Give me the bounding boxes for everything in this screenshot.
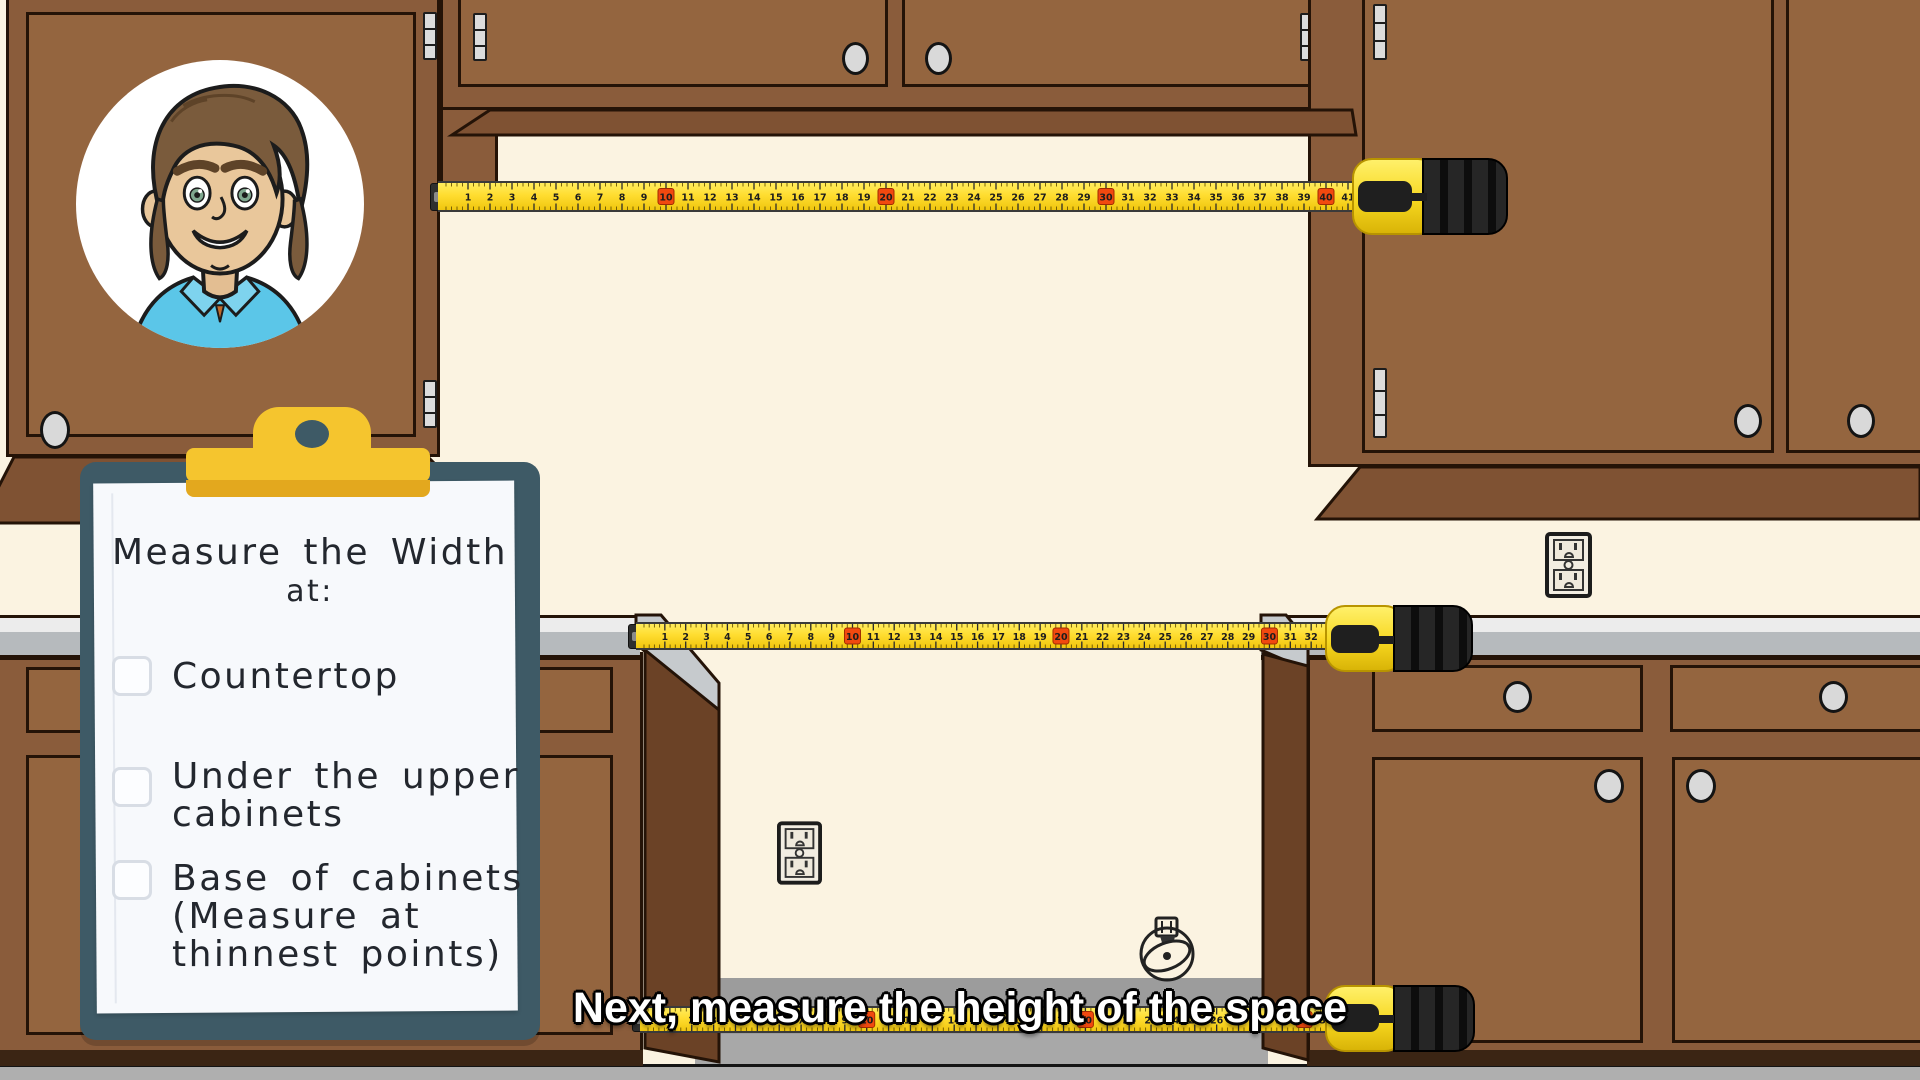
svg-text:35: 35 [1209, 193, 1222, 204]
svg-text:30: 30 [1099, 193, 1113, 204]
svg-text:16: 16 [791, 193, 805, 204]
svg-text:27: 27 [1200, 632, 1213, 643]
svg-text:40: 40 [1319, 193, 1333, 204]
svg-text:5: 5 [553, 193, 560, 204]
base-right-door-knob-1 [1594, 769, 1624, 803]
clipboard-clip-hole [295, 420, 329, 448]
svg-text:21: 21 [901, 193, 914, 204]
upper-cabinet-middle-door-left [458, 0, 888, 87]
tape-body-countertop-back [1393, 605, 1473, 672]
svg-text:12: 12 [888, 632, 901, 643]
svg-text:15: 15 [769, 193, 782, 204]
kitchen-floor [0, 1064, 1920, 1080]
svg-text:13: 13 [908, 632, 921, 643]
svg-text:23: 23 [1117, 632, 1130, 643]
svg-text:26: 26 [1179, 632, 1193, 643]
svg-text:1: 1 [465, 193, 472, 204]
svg-text:38: 38 [1275, 193, 1289, 204]
wall-outlet-lower [777, 818, 822, 888]
svg-text:27: 27 [1033, 193, 1046, 204]
svg-text:11: 11 [681, 193, 694, 204]
svg-text:26: 26 [1011, 193, 1025, 204]
hinge-icon [1373, 4, 1387, 60]
svg-text:22: 22 [923, 193, 936, 204]
svg-text:9: 9 [641, 193, 648, 204]
svg-text:17: 17 [813, 193, 826, 204]
svg-text:20: 20 [1054, 632, 1068, 643]
base-right-drawer-knob-2 [1819, 681, 1848, 713]
svg-text:3: 3 [703, 632, 710, 643]
clipboard-clip-bar [186, 448, 430, 482]
svg-text:7: 7 [787, 632, 794, 643]
tape-body-upper-lock [1358, 181, 1412, 212]
svg-text:14: 14 [929, 632, 943, 643]
svg-text:12: 12 [703, 193, 716, 204]
upper-cabinet-right-door-right [1786, 0, 1920, 453]
svg-text:4: 4 [724, 632, 731, 643]
svg-text:2: 2 [682, 632, 689, 643]
checkbox-base-of-cabinets[interactable] [112, 860, 152, 900]
svg-text:30: 30 [1263, 632, 1277, 643]
svg-text:17: 17 [992, 632, 1005, 643]
svg-text:3: 3 [509, 193, 516, 204]
checklist-heading-line2: at: [80, 574, 540, 609]
tape-body-countertop-lock [1331, 625, 1379, 653]
avatar-eye [232, 177, 258, 209]
checklist-heading-line1: Measure the Width [80, 532, 540, 573]
hinge-icon [1373, 368, 1387, 438]
svg-text:10: 10 [846, 632, 860, 643]
svg-text:41: 41 [1341, 193, 1352, 204]
upper-cabinet-left-knob [40, 411, 70, 449]
svg-text:25: 25 [989, 193, 1002, 204]
presenter-avatar [76, 60, 364, 348]
svg-text:2: 2 [487, 193, 494, 204]
svg-text:37: 37 [1253, 193, 1266, 204]
tape-measure-countertop: 1234567891011121314151617181920212223242… [636, 622, 1336, 650]
svg-text:36: 36 [1231, 193, 1245, 204]
svg-text:9: 9 [828, 632, 835, 643]
checklist-item-under-upper-cabinets: Under the upper cabinets [172, 758, 532, 834]
base-right-drawer-knob-1 [1503, 681, 1532, 713]
svg-text:31: 31 [1121, 193, 1134, 204]
svg-text:28: 28 [1055, 193, 1069, 204]
svg-text:6: 6 [766, 632, 773, 643]
upper-cabinet-right-knob-right [1847, 404, 1875, 438]
tape-measure-upper: 1234567891011121314151617181920212223242… [438, 181, 1352, 212]
clipboard-clip-shadow [186, 480, 430, 497]
svg-text:1: 1 [662, 632, 669, 643]
hinge-icon [423, 12, 437, 60]
avatar-eye [184, 177, 210, 209]
upper-cabinet-middle-knob-left [842, 42, 869, 75]
upper-cabinet-right-knob-left [1734, 404, 1762, 438]
svg-text:31: 31 [1284, 632, 1297, 643]
base-right-drawer-2 [1670, 665, 1920, 732]
checkbox-countertop[interactable] [112, 656, 152, 696]
svg-text:39: 39 [1297, 193, 1310, 204]
checkbox-under-upper-cabinets[interactable] [112, 767, 152, 807]
upper-cabinet-middle-knob-right [925, 42, 952, 75]
hanging-pan-icon [1132, 916, 1202, 982]
wall-outlet-upper [1545, 532, 1592, 598]
svg-text:11: 11 [867, 632, 880, 643]
svg-text:18: 18 [1013, 632, 1027, 643]
svg-text:29: 29 [1077, 193, 1090, 204]
svg-text:8: 8 [619, 193, 626, 204]
svg-text:19: 19 [1034, 632, 1047, 643]
hinge-icon [423, 380, 437, 428]
svg-text:28: 28 [1221, 632, 1235, 643]
tape-body-upper-back [1422, 158, 1508, 235]
svg-text:14: 14 [747, 193, 761, 204]
svg-text:23: 23 [945, 193, 958, 204]
svg-text:32: 32 [1305, 632, 1318, 643]
svg-text:33: 33 [1165, 193, 1178, 204]
svg-text:8: 8 [807, 632, 814, 643]
clipboard: Measure the Width at: Countertop Under t… [80, 462, 540, 1040]
svg-text:29: 29 [1242, 632, 1255, 643]
svg-text:10: 10 [659, 193, 673, 204]
checklist-item-base-of-cabinets: Base of cabinets (Measure at thinnest po… [172, 860, 542, 974]
base-right-toe-kick [1307, 1050, 1920, 1066]
svg-text:18: 18 [835, 193, 849, 204]
svg-text:13: 13 [725, 193, 738, 204]
upper-cabinet-middle-door-right [902, 0, 1332, 87]
svg-text:19: 19 [857, 193, 870, 204]
svg-text:25: 25 [1159, 632, 1172, 643]
video-caption: Next, measure the height of the space [0, 984, 1920, 1033]
checklist-item-countertop: Countertop [172, 658, 522, 696]
svg-text:24: 24 [1138, 632, 1152, 643]
svg-text:34: 34 [1187, 193, 1201, 204]
svg-text:15: 15 [950, 632, 963, 643]
svg-text:7: 7 [597, 193, 604, 204]
base-right-door-knob-2 [1686, 769, 1716, 803]
svg-text:32: 32 [1143, 193, 1156, 204]
svg-text:22: 22 [1096, 632, 1109, 643]
hinge-icon [473, 13, 487, 61]
svg-text:24: 24 [967, 193, 981, 204]
svg-text:6: 6 [575, 193, 582, 204]
svg-text:20: 20 [879, 193, 893, 204]
svg-text:16: 16 [971, 632, 985, 643]
svg-text:5: 5 [745, 632, 752, 643]
base-left-toe-kick [0, 1050, 643, 1066]
svg-text:4: 4 [531, 193, 538, 204]
svg-text:21: 21 [1075, 632, 1088, 643]
